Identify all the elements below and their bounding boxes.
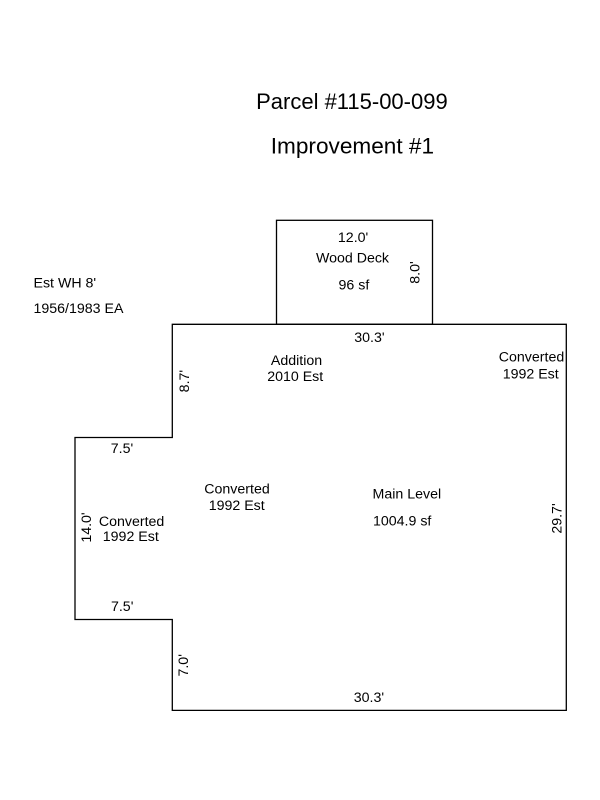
svg-text:30.3': 30.3' — [354, 690, 384, 706]
svg-text:7.5': 7.5' — [111, 441, 133, 457]
svg-text:1992 Est: 1992 Est — [503, 367, 559, 383]
svg-text:Converted: Converted — [204, 482, 269, 498]
svg-text:30.3': 30.3' — [354, 330, 384, 346]
svg-text:1956/1983 EA: 1956/1983 EA — [34, 301, 124, 317]
svg-text:Main Level: Main Level — [373, 487, 442, 503]
svg-text:1992 Est: 1992 Est — [103, 529, 159, 545]
svg-text:8.7': 8.7' — [177, 370, 193, 392]
svg-text:Parcel #115-00-099: Parcel #115-00-099 — [256, 89, 448, 114]
svg-text:2010 Est: 2010 Est — [267, 369, 323, 385]
svg-text:12.0': 12.0' — [338, 230, 368, 246]
svg-text:14.0': 14.0' — [79, 512, 95, 542]
svg-text:1992 Est: 1992 Est — [209, 498, 265, 514]
svg-text:96 sf: 96 sf — [339, 278, 370, 294]
svg-text:Improvement #1: Improvement #1 — [271, 134, 434, 159]
svg-text:8.0': 8.0' — [408, 261, 424, 283]
svg-text:Converted: Converted — [99, 514, 164, 530]
svg-text:7.0': 7.0' — [176, 654, 192, 676]
svg-text:Converted: Converted — [499, 350, 564, 366]
svg-text:Addition: Addition — [271, 353, 322, 369]
svg-text:29.7': 29.7' — [550, 503, 566, 533]
svg-text:1004.9 sf: 1004.9 sf — [373, 514, 431, 530]
svg-text:Wood Deck: Wood Deck — [316, 250, 390, 266]
svg-text:Est WH 8': Est WH 8' — [34, 276, 97, 292]
svg-text:7.5': 7.5' — [111, 599, 133, 615]
